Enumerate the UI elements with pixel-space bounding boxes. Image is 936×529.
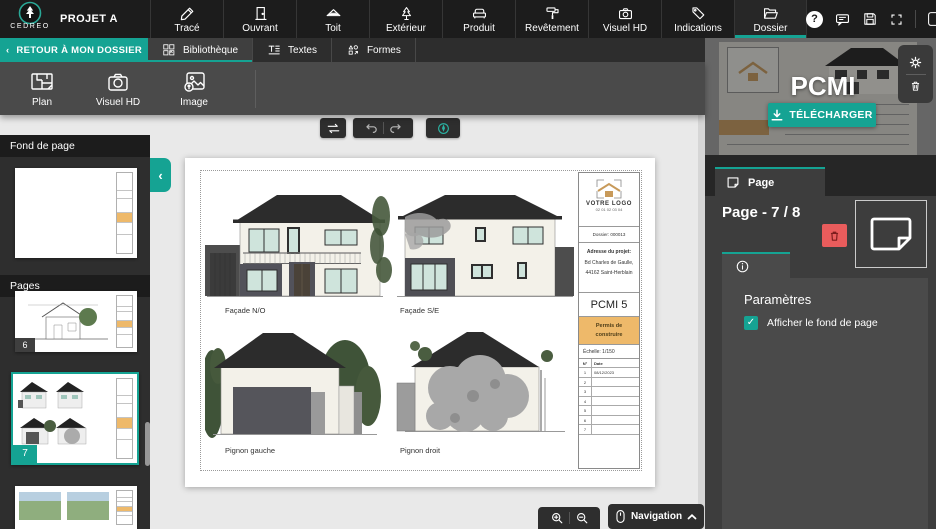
logo-phone: 02 01 02 03 04	[579, 207, 639, 212]
dossier-panel: PCMI TÉLÉCHARGER Page Page - 7 / 8	[705, 38, 936, 529]
divider	[255, 70, 256, 108]
page-panel: Page - 7 / 8 Paramètres ✓ Afficher le fo…	[705, 196, 936, 529]
mini-title-block	[116, 378, 133, 459]
divider	[383, 122, 384, 134]
divider	[915, 10, 916, 28]
mini-title-block	[116, 490, 133, 525]
zoom-in-icon[interactable]	[549, 510, 565, 526]
download-icon	[771, 109, 783, 121]
mini-title-block	[116, 295, 133, 348]
tab-trace[interactable]: Tracé	[150, 0, 223, 38]
tab-label: Ouvrant	[242, 23, 278, 34]
tab-visuel-hd[interactable]: Visuel HD	[588, 0, 661, 38]
tab-dossier[interactable]: Dossier	[734, 0, 807, 38]
page-7-thumbnail[interactable]: 7	[11, 372, 139, 465]
chevron-up-icon	[687, 513, 697, 521]
gear-icon[interactable]	[908, 55, 923, 70]
tree-drawing	[369, 190, 393, 286]
insert-image-button[interactable]: Image	[157, 62, 231, 115]
insert-label: Plan	[32, 97, 52, 108]
history-buttons	[353, 118, 413, 138]
info-tab[interactable]	[722, 252, 790, 278]
image-upload-icon	[181, 70, 207, 94]
tree-icon	[398, 5, 415, 22]
pcmi-title: PCMI	[771, 71, 875, 102]
tag-icon	[690, 5, 707, 22]
col-date: Date	[592, 359, 639, 367]
page-tab-label: Page	[748, 177, 774, 189]
info-icon	[735, 259, 750, 274]
tab-label: Visuel HD	[603, 23, 647, 34]
page-8-preview	[19, 492, 111, 528]
chevron-left-icon: ‹	[6, 45, 9, 56]
panel-tabstrip: Page	[705, 155, 936, 196]
revision-table: N°Date 108/12/2023 2 3 4 5 6 7	[579, 359, 639, 437]
replace-page-button[interactable]	[320, 118, 346, 138]
compass-button[interactable]	[426, 118, 460, 138]
preview-tools	[898, 45, 933, 103]
tab-label: Extérieur	[386, 23, 426, 34]
pencil-icon	[179, 5, 196, 22]
mouse-icon	[615, 509, 626, 524]
folder-icon	[762, 5, 779, 22]
tab-indications[interactable]: Indications	[661, 0, 734, 38]
scale-cell: Échelle: 1/150	[579, 345, 639, 359]
tab-toit[interactable]: Toit	[296, 0, 369, 38]
insert-toolbar: Plan Visuel HD Image	[0, 62, 705, 115]
page-tab[interactable]: Page	[715, 167, 825, 196]
address-line1: Bd Charles de Gaulle,	[585, 260, 634, 266]
facade-no-label: Façade N/O	[225, 306, 265, 315]
tab-label: Revêtement	[525, 23, 579, 34]
download-button[interactable]: TÉLÉCHARGER	[768, 103, 876, 127]
pages-sidebar: Fond de page Pages 6	[0, 135, 150, 529]
empty-cell	[579, 437, 639, 468]
undo-icon[interactable]	[363, 121, 379, 135]
library-toolbar: ‹ RETOUR À MON DOSSIER Bibliothèque Text…	[0, 38, 705, 62]
back-label: RETOUR À MON DOSSIER	[16, 45, 142, 56]
library-tabs: Bibliothèque Textes Formes	[148, 38, 416, 62]
brand-logo[interactable]: CEDREO	[5, 1, 55, 30]
profile-icon[interactable]	[927, 11, 936, 27]
top-actions: ?	[806, 0, 936, 38]
camera-icon	[617, 5, 634, 22]
tab-label: Toit	[325, 23, 341, 34]
dossier-number: Dossier: 000013	[579, 227, 639, 243]
show-background-checkbox[interactable]: ✓	[744, 316, 758, 330]
zoom-controls	[538, 507, 600, 529]
project-name: PROJET A	[60, 0, 118, 38]
page-settings-panel: Paramètres ✓ Afficher le fond de page	[722, 278, 928, 529]
divider	[906, 74, 926, 75]
shapes-icon	[346, 43, 360, 57]
address-label: Adresse du projet:	[587, 249, 631, 255]
fond-de-page-thumbnail[interactable]	[15, 168, 137, 258]
cedreo-logo-icon	[18, 1, 42, 25]
text-icon	[267, 43, 281, 57]
address-line2: 44162 Saint-Herblain	[586, 270, 633, 276]
document-code: PCMI 5	[579, 293, 639, 317]
zoom-out-icon[interactable]	[574, 510, 590, 526]
tab-revetement[interactable]: Revêtement	[515, 0, 588, 38]
pignon-gauche-drawing	[205, 326, 385, 442]
door-icon	[252, 5, 269, 22]
facade-se-drawing	[395, 192, 575, 304]
navigation-button[interactable]: Navigation	[608, 504, 704, 529]
trash-icon[interactable]	[909, 79, 922, 93]
tab-label: Formes	[367, 45, 401, 56]
top-bar: CEDREO PROJET A Tracé Ouvrant Toit Extér…	[0, 0, 936, 38]
page-8-thumbnail[interactable]	[15, 486, 137, 529]
tab-label: Tracé	[174, 23, 199, 34]
plan-icon	[29, 70, 55, 94]
tab-bibliotheque[interactable]: Bibliothèque	[148, 38, 253, 62]
insert-plan-button[interactable]: Plan	[5, 62, 79, 115]
save-icon[interactable]	[862, 11, 878, 27]
page-icon	[726, 176, 740, 189]
navigation-label: Navigation	[631, 511, 682, 522]
camera-icon	[105, 70, 131, 94]
sidebar-scrollbar[interactable]	[145, 422, 150, 466]
page-number-badge: 7	[13, 445, 37, 463]
fullscreen-icon[interactable]	[889, 12, 904, 27]
comment-icon[interactable]	[834, 11, 851, 28]
pignon-droit-drawing	[395, 326, 575, 442]
insert-visuel-hd-button[interactable]: Visuel HD	[81, 62, 155, 115]
app-window: CEDREO PROJET A Tracé Ouvrant Toit Extér…	[0, 0, 936, 529]
insert-label: Image	[180, 97, 208, 108]
tab-formes[interactable]: Formes	[332, 38, 416, 62]
pcmi-preview[interactable]: PCMI TÉLÉCHARGER	[705, 38, 936, 155]
tab-exterieur[interactable]: Extérieur	[369, 0, 442, 38]
tab-produit[interactable]: Produit	[442, 0, 515, 38]
tab-ouvrant[interactable]: Ouvrant	[223, 0, 296, 38]
permit-cell: Permis de construire	[579, 317, 639, 345]
gallery-icon	[162, 43, 176, 57]
page-heading: Page - 7 / 8	[722, 204, 800, 221]
pignon-droit-label: Pignon droit	[400, 446, 440, 455]
page-icon	[868, 214, 914, 254]
mini-title-block	[116, 172, 133, 254]
tab-label: Bibliothèque	[183, 45, 238, 56]
back-to-dossier-button[interactable]: ‹ RETOUR À MON DOSSIER	[0, 38, 148, 62]
votre-logo-icon	[594, 177, 624, 201]
tab-label: Textes	[288, 45, 317, 56]
divider	[569, 512, 570, 524]
tab-label: Produit	[463, 23, 495, 34]
redo-icon[interactable]	[388, 121, 404, 135]
delete-page-button[interactable]	[822, 224, 847, 247]
sofa-icon	[471, 5, 488, 22]
help-button[interactable]: ?	[806, 11, 823, 28]
tab-label: Indications	[674, 23, 722, 34]
tab-label: Dossier	[754, 23, 788, 34]
compass-icon	[436, 121, 451, 136]
fond-de-page-header: Fond de page	[0, 135, 150, 157]
page-6-thumbnail[interactable]: 6	[15, 291, 137, 352]
paint-roller-icon	[544, 5, 561, 22]
sidebar-collapse-button[interactable]: ‹	[150, 158, 171, 192]
swap-icon	[326, 122, 341, 135]
canvas-scrollbar[interactable]	[698, 115, 705, 529]
download-label: TÉLÉCHARGER	[789, 109, 872, 121]
pignon-gauche-label: Pignon gauche	[225, 446, 275, 455]
facade-se-label: Façade S/E	[400, 306, 439, 315]
title-block-logo: VOTRE LOGO 02 01 02 03 04	[579, 173, 639, 227]
parameters-title: Paramètres	[744, 292, 811, 307]
brand-name: CEDREO	[5, 23, 55, 30]
top-tab-bar: Tracé Ouvrant Toit Extérieur Produit Rev…	[150, 0, 807, 38]
col-num: N°	[579, 359, 592, 367]
page-number-badge: 6	[15, 338, 35, 352]
project-address: Adresse du projet: Bd Charles de Gaulle,…	[579, 243, 639, 293]
insert-label: Visuel HD	[96, 97, 140, 108]
trash-icon	[828, 229, 841, 243]
roof-icon	[325, 5, 342, 22]
tab-textes[interactable]: Textes	[253, 38, 332, 62]
title-block: VOTRE LOGO 02 01 02 03 04 Dossier: 00001…	[578, 172, 640, 469]
show-background-row[interactable]: ✓ Afficher le fond de page	[744, 316, 878, 330]
facade-no-drawing	[205, 192, 385, 304]
page-format-box[interactable]	[855, 200, 927, 268]
document-page[interactable]: Façade N/O Façade S/E	[185, 158, 655, 487]
show-background-label: Afficher le fond de page	[767, 317, 878, 329]
